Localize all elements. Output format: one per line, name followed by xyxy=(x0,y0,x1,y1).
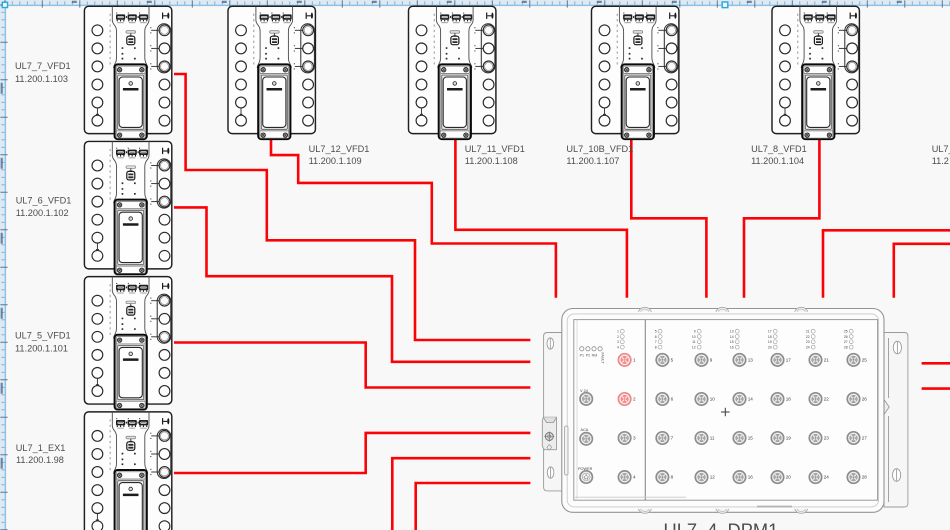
svg-text:7: 7 xyxy=(671,436,674,441)
svg-text:UL7_12_VFD1: UL7_12_VFD1 xyxy=(309,144,370,154)
svg-text:UL7_11_VFD1: UL7_11_VFD1 xyxy=(465,144,525,154)
svg-text:28: 28 xyxy=(844,345,848,349)
svg-text:22: 22 xyxy=(806,335,810,339)
svg-text:8: 8 xyxy=(671,475,674,480)
svg-text:20: 20 xyxy=(786,475,792,480)
svg-text:19: 19 xyxy=(786,436,792,441)
svg-text:16: 16 xyxy=(748,475,754,480)
svg-text:27: 27 xyxy=(862,436,868,441)
svg-text:28: 28 xyxy=(862,475,868,480)
svg-text:1: 1 xyxy=(633,357,636,362)
svg-text:15: 15 xyxy=(748,436,754,441)
svg-text:11.200.1.104: 11.200.1.104 xyxy=(751,156,804,166)
svg-text:11.200.1.108: 11.200.1.108 xyxy=(465,156,518,166)
svg-text:12: 12 xyxy=(692,345,696,349)
svg-text:13: 13 xyxy=(748,357,754,362)
svg-text:ACA: ACA xyxy=(581,428,589,432)
svg-text:UL7_: UL7_ xyxy=(932,144,950,154)
svg-text:RM: RM xyxy=(592,354,598,358)
svg-text:25: 25 xyxy=(844,330,848,334)
svg-text:11.200.1.98: 11.200.1.98 xyxy=(16,455,64,465)
svg-text:13: 13 xyxy=(730,330,734,334)
svg-text:UL7_1_EX1: UL7_1_EX1 xyxy=(16,443,66,453)
svg-text:23: 23 xyxy=(806,340,810,344)
svg-text:16: 16 xyxy=(730,345,734,349)
svg-text:12: 12 xyxy=(710,475,716,480)
svg-text:1: 1 xyxy=(617,330,619,334)
svg-text:10: 10 xyxy=(692,335,696,339)
svg-text:11.200.1.109: 11.200.1.109 xyxy=(309,156,362,166)
svg-text:8: 8 xyxy=(655,345,657,349)
svg-text:18: 18 xyxy=(786,397,792,402)
svg-text:26: 26 xyxy=(862,397,868,402)
svg-text:UL7_7_VFD1: UL7_7_VFD1 xyxy=(15,61,71,71)
svg-text:11.200.1.107: 11.200.1.107 xyxy=(566,156,619,166)
svg-text:UL7_6_VFD1: UL7_6_VFD1 xyxy=(16,196,72,206)
svg-text:11.200.1.103: 11.200.1.103 xyxy=(15,74,68,84)
svg-text:10: 10 xyxy=(710,397,716,402)
svg-text:14: 14 xyxy=(730,335,734,339)
svg-text:27: 27 xyxy=(844,340,848,344)
svg-text:FAULT: FAULT xyxy=(601,353,605,365)
svg-text:24: 24 xyxy=(806,345,810,349)
svg-text:11: 11 xyxy=(710,436,715,441)
svg-text:6: 6 xyxy=(671,397,674,402)
svg-text:P1: P1 xyxy=(580,354,584,358)
svg-text:26: 26 xyxy=(844,335,848,339)
svg-text:7: 7 xyxy=(655,340,657,344)
svg-text:9: 9 xyxy=(694,330,696,334)
svg-text:22: 22 xyxy=(824,397,830,402)
svg-text:4: 4 xyxy=(617,345,619,349)
svg-text:21: 21 xyxy=(806,330,810,334)
svg-text:11.200.1.102: 11.200.1.102 xyxy=(16,208,69,218)
svg-text:9: 9 xyxy=(710,357,713,362)
svg-text:11.200.1.101: 11.200.1.101 xyxy=(15,344,68,354)
svg-text:UL7_10B_VFD1: UL7_10B_VFD1 xyxy=(566,144,633,154)
svg-text:5: 5 xyxy=(655,330,657,334)
svg-text:UL7_5_VFD1: UL7_5_VFD1 xyxy=(15,330,71,340)
svg-text:5: 5 xyxy=(671,357,674,362)
svg-text:11.2: 11.2 xyxy=(932,156,949,166)
svg-text:20: 20 xyxy=(768,345,772,349)
svg-text:19: 19 xyxy=(768,340,772,344)
svg-text:24: 24 xyxy=(824,475,830,480)
svg-text:18: 18 xyxy=(768,335,772,339)
svg-text:2: 2 xyxy=(633,397,636,402)
svg-text:P2: P2 xyxy=(586,354,590,358)
svg-text:14: 14 xyxy=(748,397,754,402)
svg-text:11: 11 xyxy=(692,340,696,344)
svg-text:15: 15 xyxy=(730,340,734,344)
svg-text:23: 23 xyxy=(824,436,830,441)
svg-text:UL7_4_DPM1: UL7_4_DPM1 xyxy=(664,520,779,530)
svg-text:6: 6 xyxy=(655,335,657,339)
svg-text:3: 3 xyxy=(633,436,636,441)
svg-text:17: 17 xyxy=(786,357,792,362)
svg-text:25: 25 xyxy=(862,357,868,362)
svg-text:17: 17 xyxy=(768,330,772,334)
svg-text:4: 4 xyxy=(633,475,636,480)
svg-text:21: 21 xyxy=(824,357,830,362)
svg-text:UL7_8_VFD1: UL7_8_VFD1 xyxy=(751,144,807,154)
svg-text:2: 2 xyxy=(617,335,619,339)
svg-text:3: 3 xyxy=(617,340,619,344)
